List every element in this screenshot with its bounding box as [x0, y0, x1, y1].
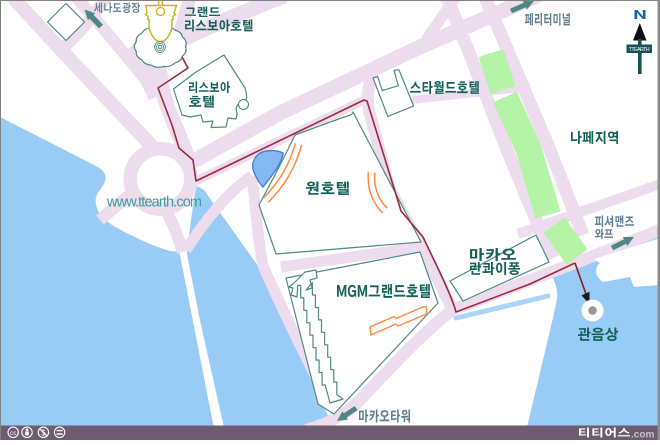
svg-text:www.ttearth.com: www.ttearth.com	[106, 195, 202, 211]
svg-text:cc: cc	[10, 430, 17, 437]
svg-text:.com: .com	[631, 430, 654, 441]
svg-text:TTEARTH: TTEARTH	[629, 47, 650, 53]
